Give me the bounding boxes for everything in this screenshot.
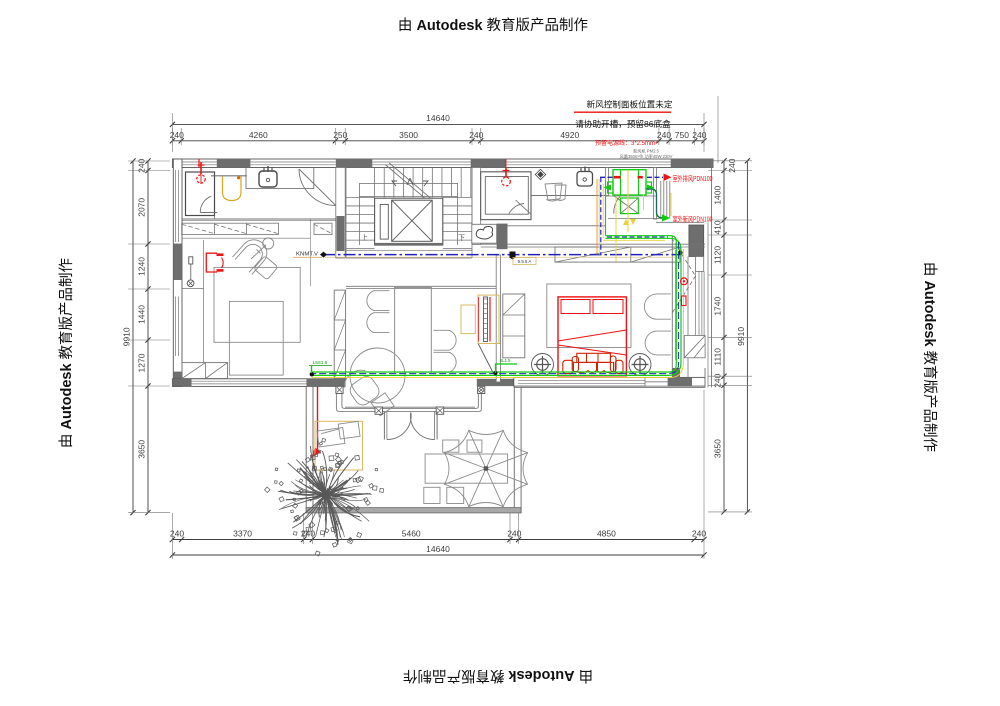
svg-text:3650: 3650: [713, 439, 723, 458]
svg-text:由 Autodesk 教育版产品制作: 由 Autodesk 教育版产品制作: [58, 258, 75, 448]
svg-text:410: 410: [713, 220, 723, 234]
svg-text:14640: 14640: [426, 113, 450, 123]
svg-text:室外排风PDN100: 室外排风PDN100: [673, 174, 713, 183]
svg-text:1400: 1400: [713, 185, 723, 204]
svg-text:1120: 1120: [713, 246, 723, 265]
svg-text:室外新风PDN100: 室外新风PDN100: [673, 215, 713, 224]
svg-text:14640: 14640: [426, 544, 450, 554]
svg-text:9910: 9910: [122, 327, 132, 346]
svg-text:240: 240: [713, 373, 723, 387]
svg-text:240: 240: [170, 130, 184, 140]
svg-text:1740: 1740: [713, 296, 723, 315]
svg-text:请协助开槽，预留86底盒: 请协助开槽，预留86底盒: [575, 118, 671, 129]
svg-text:KNMT.V: KNMT.V: [296, 252, 319, 258]
svg-text:1270: 1270: [137, 353, 147, 372]
svg-text:上: 上: [361, 233, 368, 242]
svg-text:3370: 3370: [233, 529, 252, 539]
svg-text:240: 240: [170, 529, 184, 539]
svg-text:9910: 9910: [736, 327, 746, 346]
svg-text:由 Autodesk 教育版产品制作: 由 Autodesk 教育版产品制作: [403, 667, 593, 684]
svg-text:1440: 1440: [137, 305, 147, 324]
svg-text:5460: 5460: [402, 529, 421, 539]
svg-text:2070: 2070: [137, 198, 147, 217]
svg-text:4260: 4260: [249, 130, 268, 140]
svg-text:新风控制面板位置未定: 新风控制面板位置未定: [587, 99, 673, 110]
svg-text:由 Autodesk 教育版产品制作: 由 Autodesk 教育版产品制作: [398, 17, 588, 34]
svg-text:XL1.5: XL1.5: [500, 358, 512, 363]
svg-text:4920: 4920: [560, 130, 579, 140]
svg-text:预留电源线：3*2.5mm²: 预留电源线：3*2.5mm²: [595, 139, 657, 147]
svg-text:3500: 3500: [399, 130, 418, 140]
svg-text:240: 240: [469, 130, 483, 140]
svg-text:L5S1.5: L5S1.5: [313, 360, 328, 365]
svg-text:1110: 1110: [713, 348, 723, 366]
svg-text:9.5.5 A: 9.5.5 A: [518, 259, 532, 264]
svg-text:1240: 1240: [137, 257, 147, 276]
svg-text:750: 750: [675, 130, 689, 140]
svg-text:由 Autodesk 教育版产品制作: 由 Autodesk 教育版产品制作: [921, 262, 938, 452]
svg-text:下: 下: [458, 234, 465, 242]
svg-text:240: 240: [507, 529, 521, 539]
svg-text:4850: 4850: [597, 529, 616, 539]
svg-text:3650: 3650: [137, 440, 147, 459]
